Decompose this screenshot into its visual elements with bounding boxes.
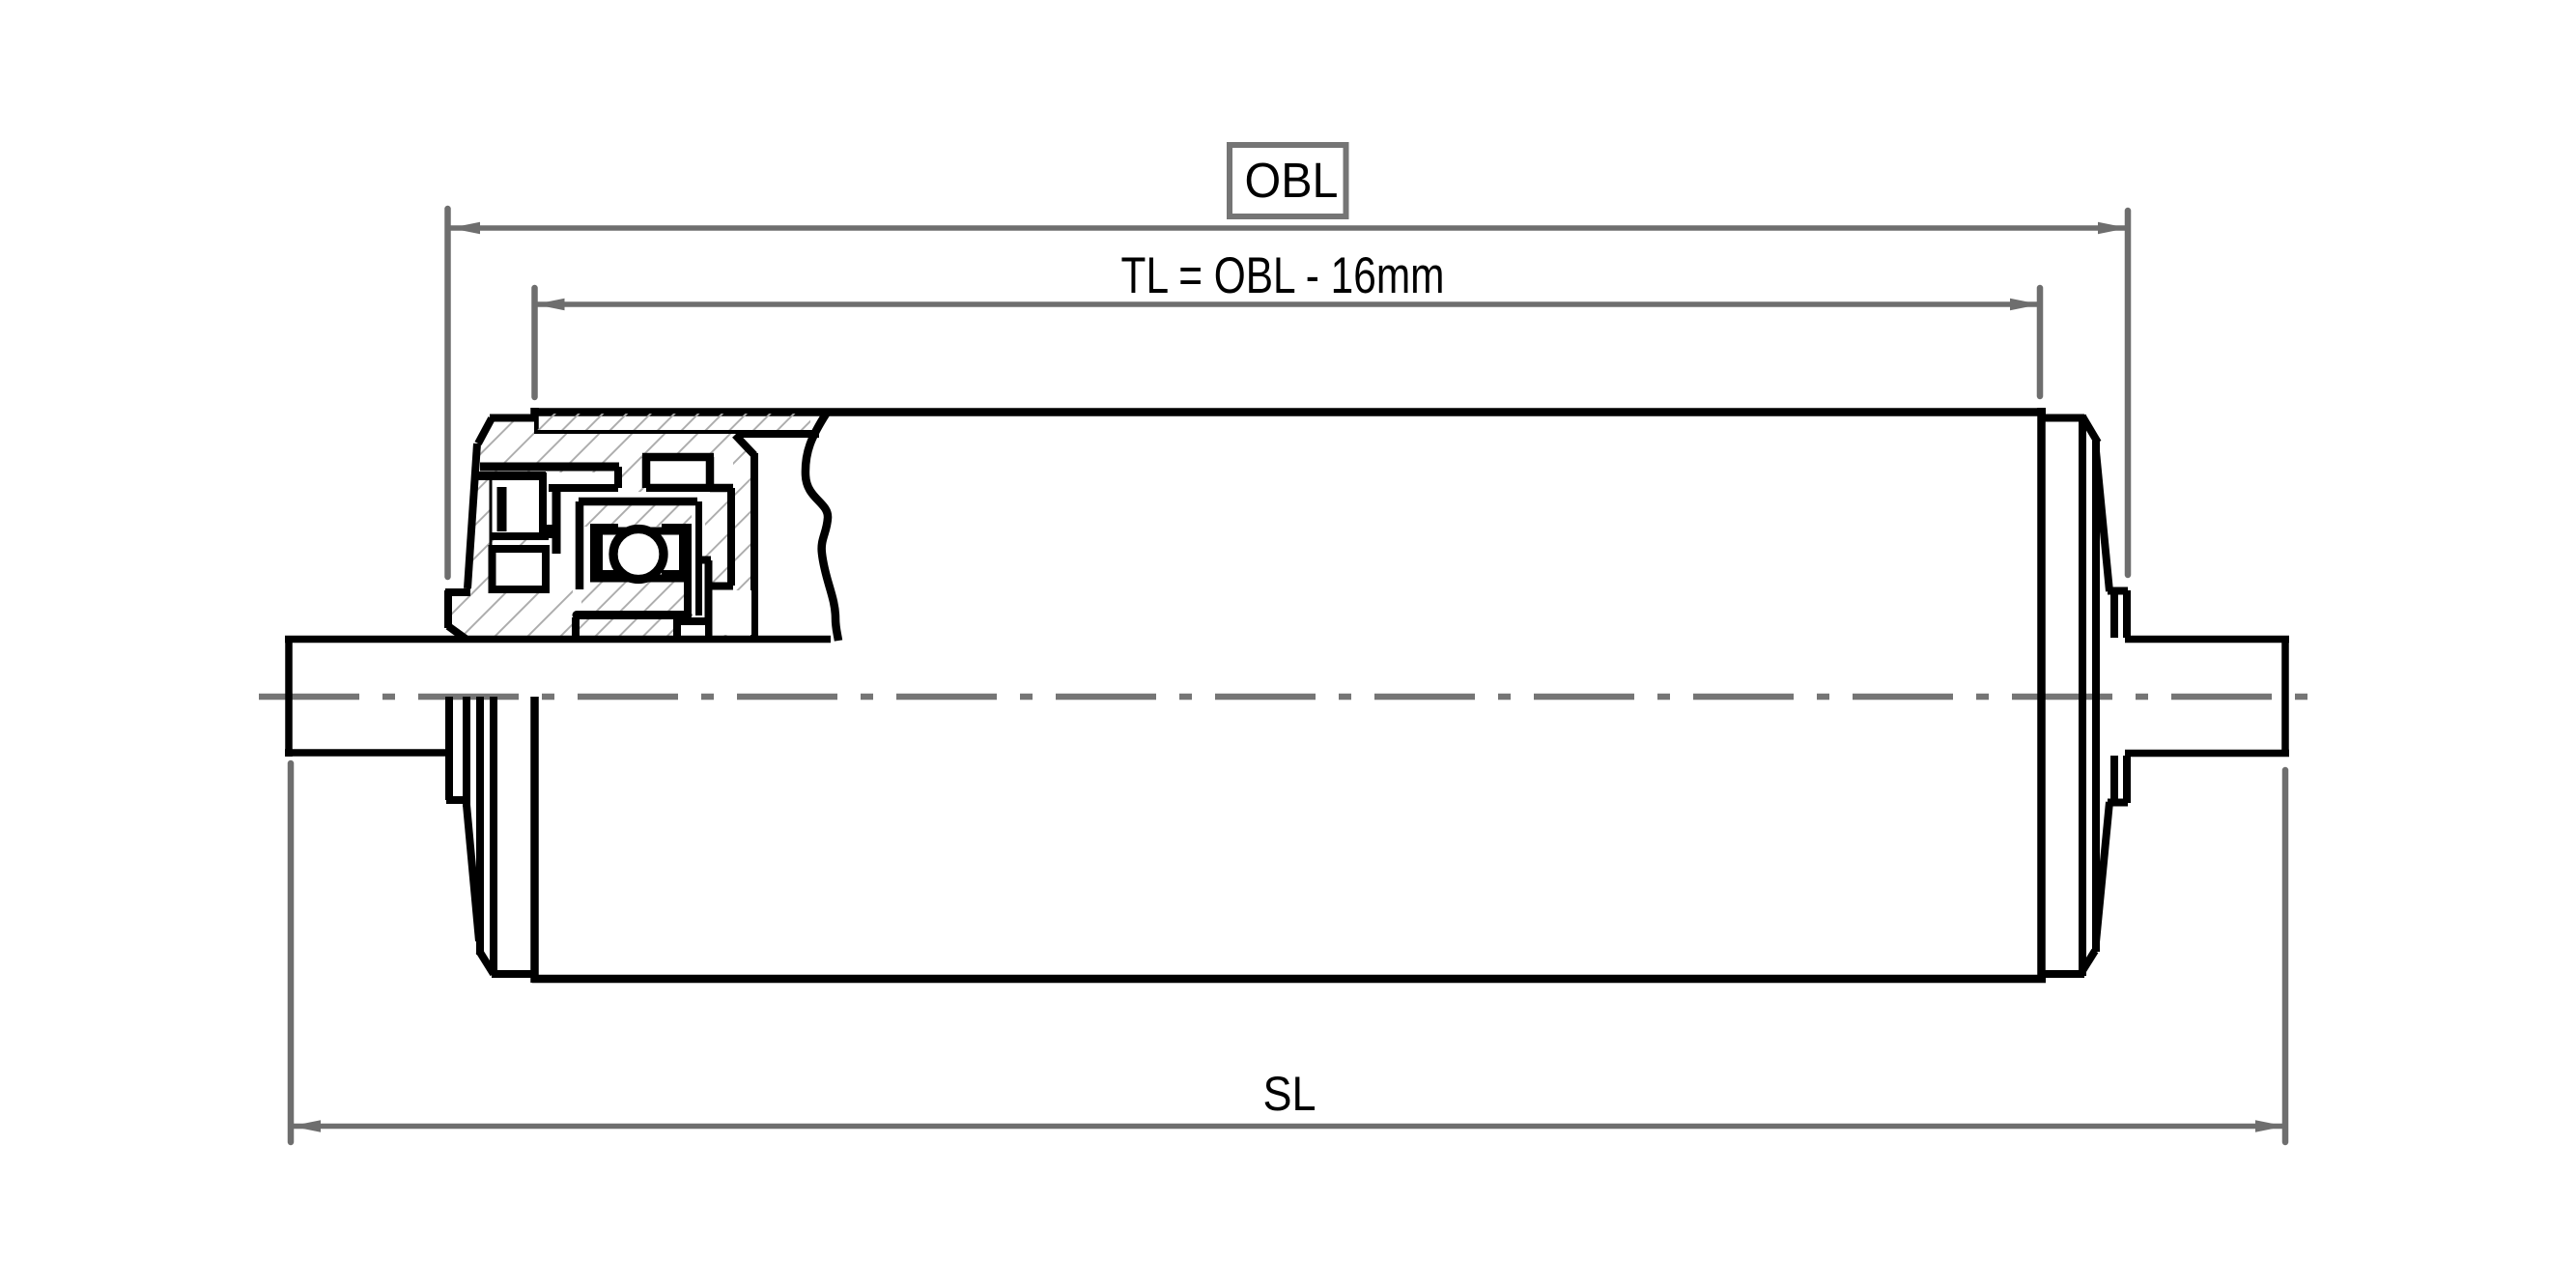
svg-text:TL = OBL - 16mm: TL = OBL - 16mm xyxy=(1121,248,1445,305)
svg-text:SL: SL xyxy=(1262,1068,1316,1122)
svg-text:OBL: OBL xyxy=(1245,153,1339,208)
